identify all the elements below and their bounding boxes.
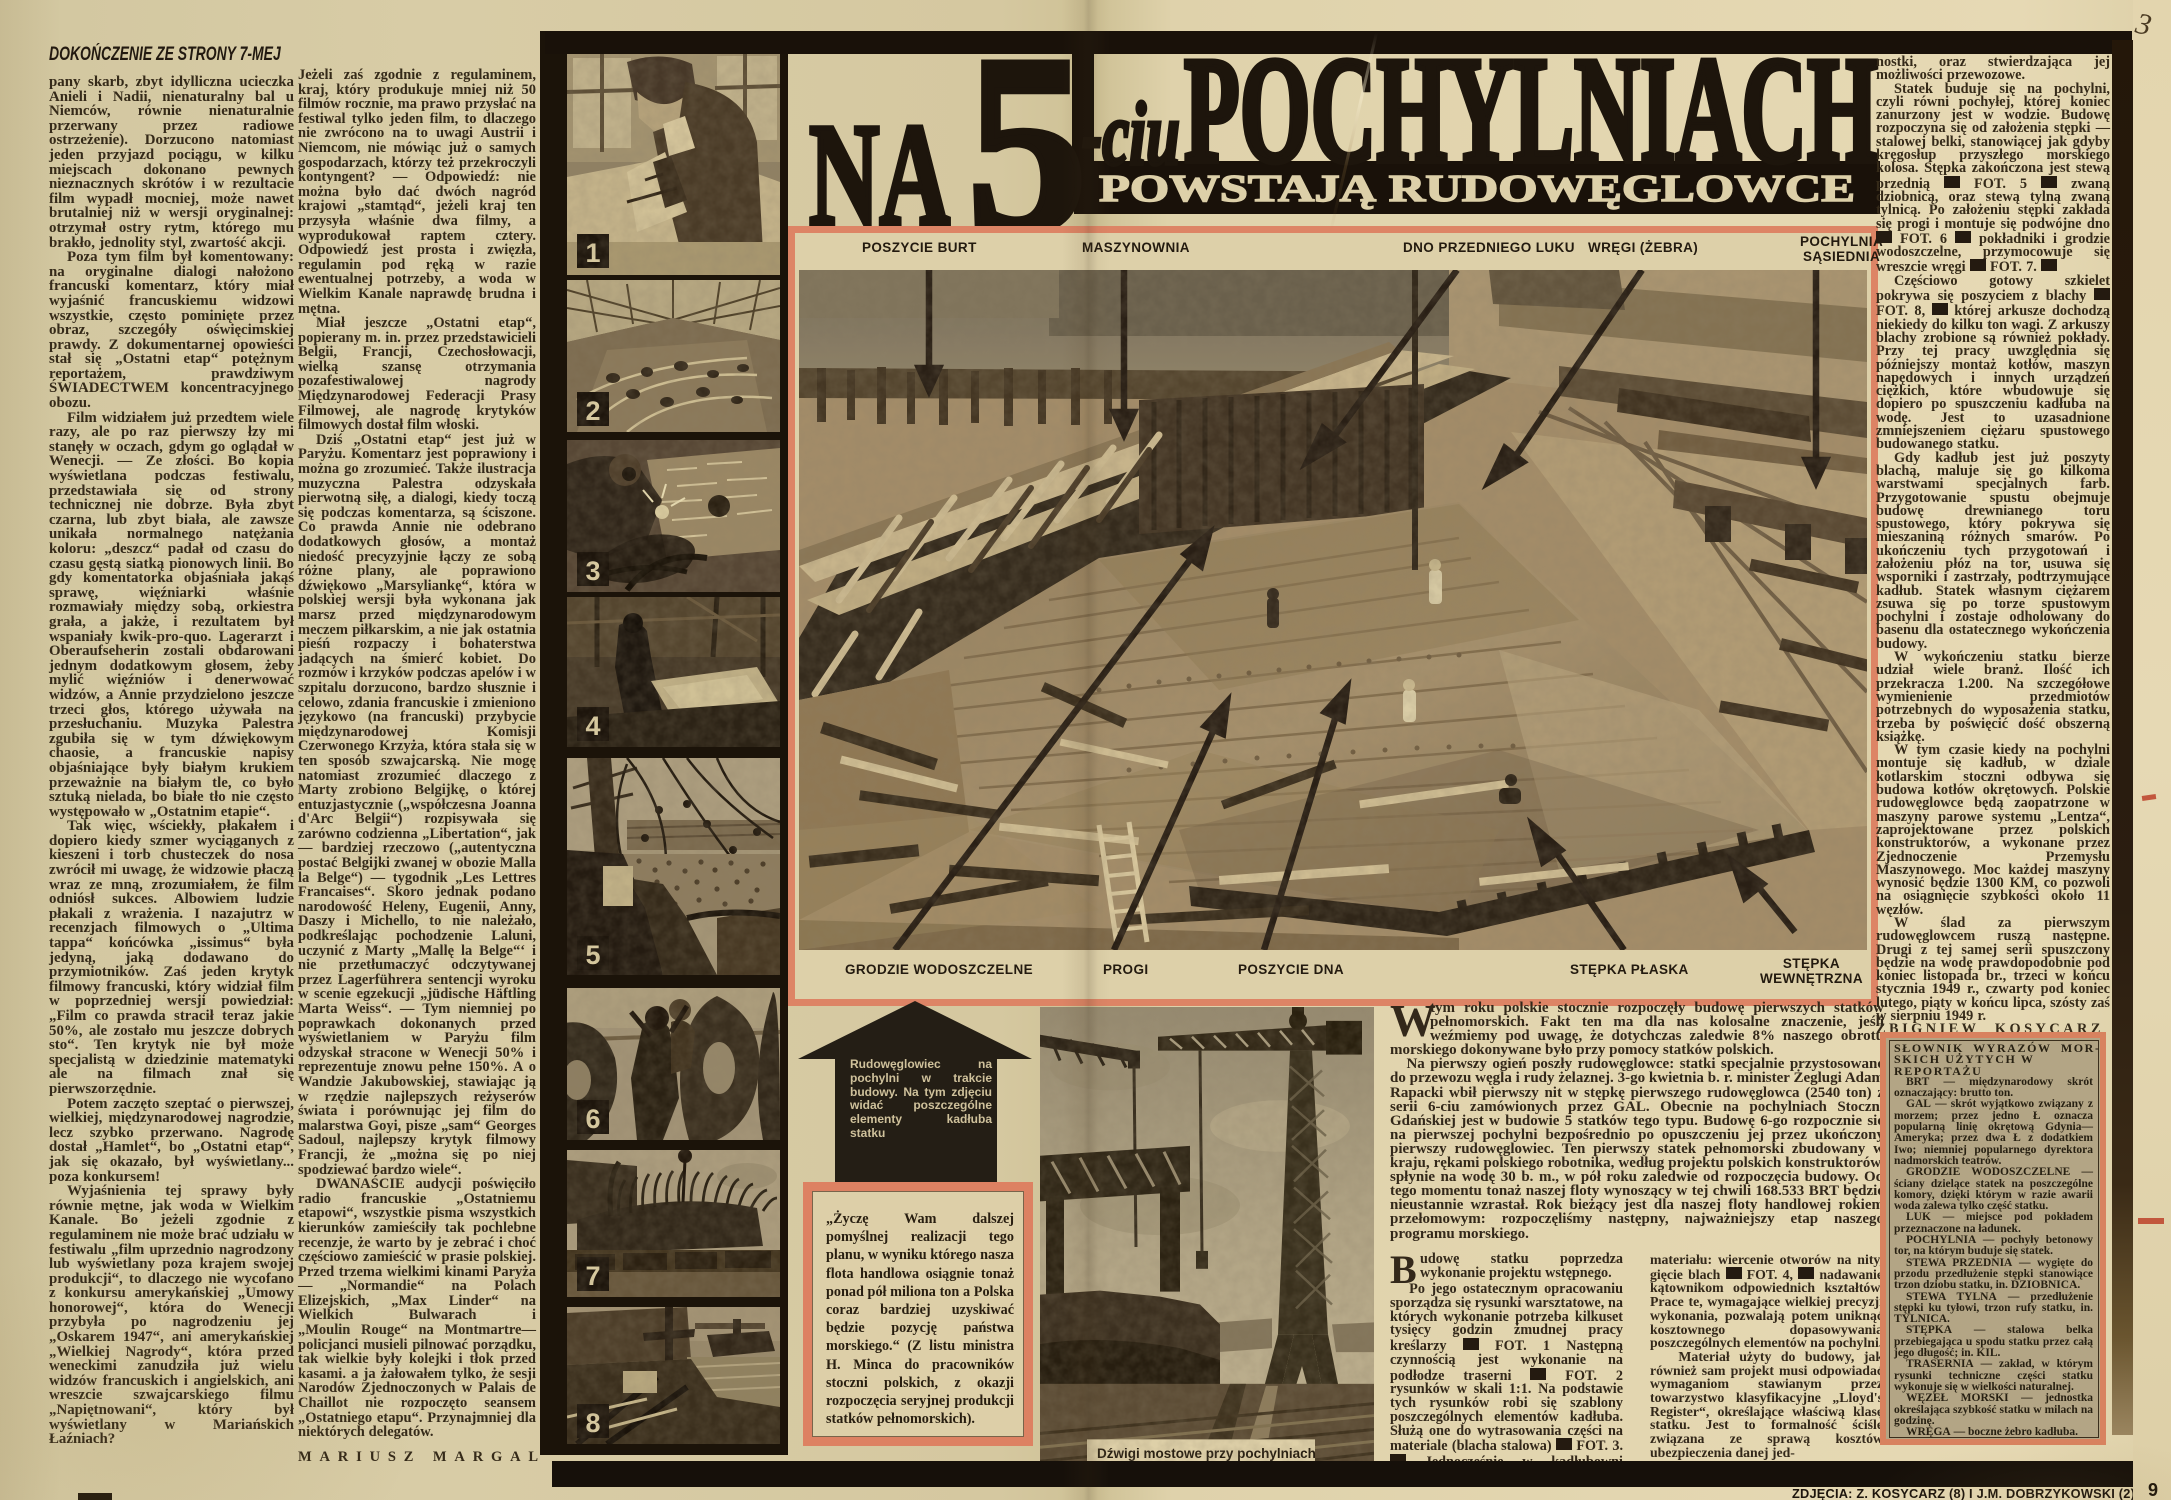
svg-text:NA: NA: [809, 93, 950, 240]
svg-text:POWSTAJĄ RUDOWĘGLOWCE: POWSTAJĄ RUDOWĘGLOWCE: [1099, 168, 1855, 210]
svg-text:5: 5: [967, 40, 1087, 240]
